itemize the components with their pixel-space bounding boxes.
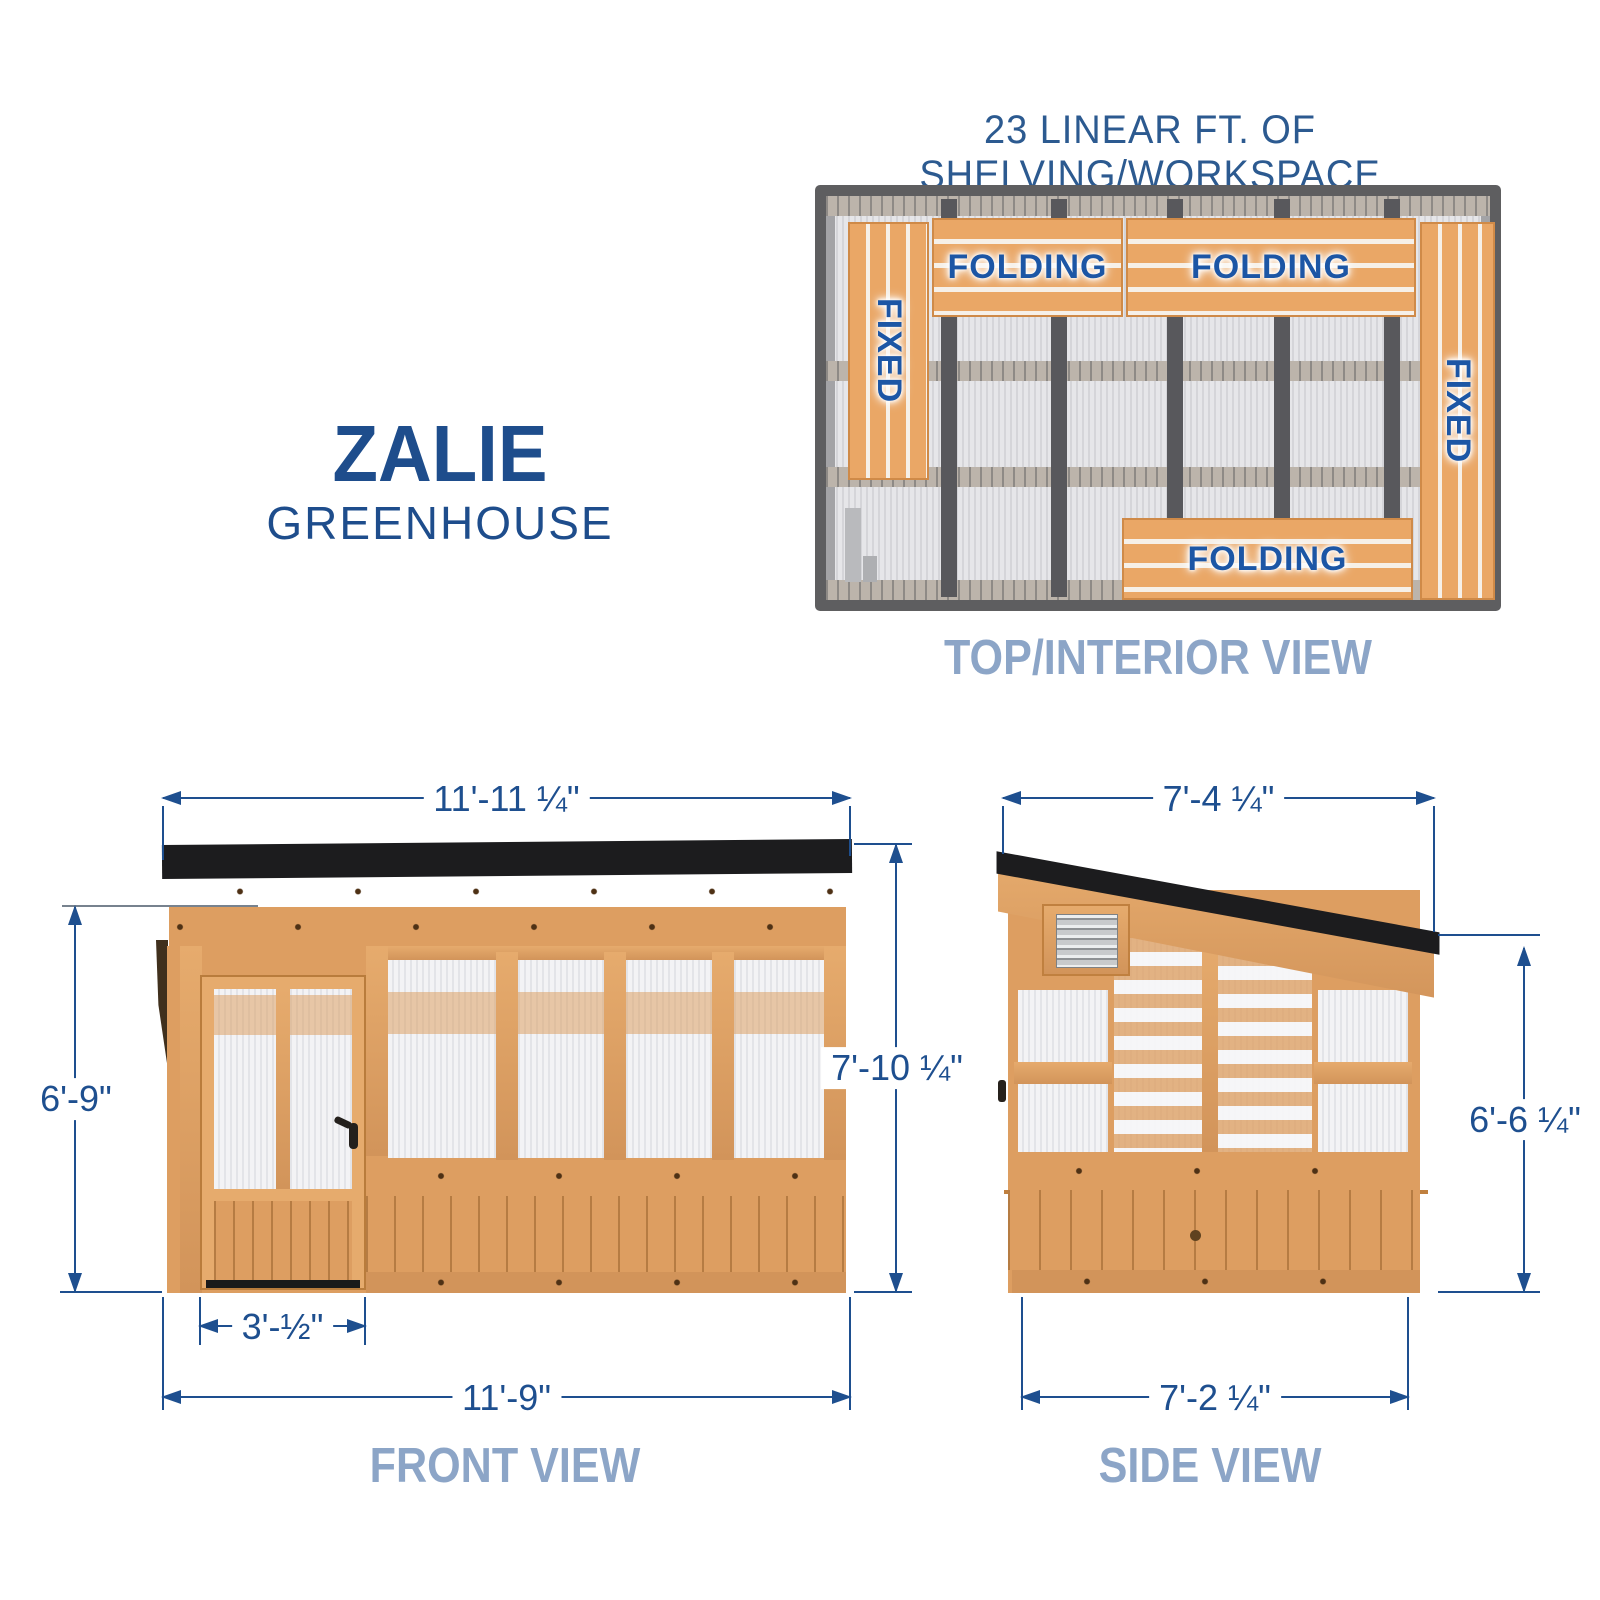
louver-vent: [1056, 914, 1118, 968]
base-trim: [1012, 1270, 1420, 1293]
extension-line: [162, 806, 164, 860]
shelf-folding-bottom: FOLDING: [1122, 518, 1413, 600]
extension-line: [849, 806, 851, 856]
shelf-folding-top-left: FOLDING: [932, 218, 1123, 317]
dim-label: 7'-10 ¼": [821, 1047, 973, 1089]
arrow-down-icon: [68, 1273, 82, 1293]
shelf-fixed-right: FIXED: [1420, 222, 1495, 600]
arrow-left-icon: [161, 1390, 181, 1404]
extension-line: [60, 1291, 162, 1293]
arrow-right-icon: [1390, 1390, 1410, 1404]
dim-side-base-depth: 7'-2 ¼": [1022, 1396, 1408, 1398]
window-mullion: [496, 952, 518, 1160]
caption-side-view: SIDE VIEW: [1025, 1438, 1395, 1494]
dim-label: 11'-9": [452, 1377, 561, 1419]
extension-line: [62, 905, 258, 907]
dim-front-door-height: 6'-9": [74, 907, 76, 1291]
extension-line: [854, 1291, 912, 1293]
door-hardware: [863, 556, 877, 582]
lower-paneling: [366, 1196, 846, 1272]
shelf-fixed-left: FIXED: [848, 222, 929, 480]
window-mullion: [604, 952, 626, 1160]
arrow-right-icon: [347, 1319, 367, 1333]
product-subtitle: GREENHOUSE: [230, 496, 650, 550]
fascia-board: [169, 907, 846, 947]
arrow-left-icon: [161, 791, 181, 805]
shelf-label: FOLDING: [1128, 220, 1414, 315]
dim-side-wall-height: 6'-6 ¼": [1523, 948, 1525, 1291]
dim-front-overall-width: 11'-11 ¼": [163, 797, 850, 799]
dim-label: 6'-6 ¼": [1459, 1099, 1591, 1141]
shelf-label: FIXED: [1422, 224, 1493, 598]
window-mullion: [712, 952, 734, 1160]
dim-label: 7'-2 ¼": [1149, 1377, 1281, 1419]
arrow-left-icon: [1020, 1390, 1040, 1404]
wood-knot: [1190, 1230, 1201, 1241]
front-view-drawing: [150, 840, 862, 1295]
arrow-left-icon: [1001, 791, 1021, 805]
extension-line: [854, 843, 912, 845]
extension-line: [1438, 1291, 1540, 1293]
door-handle-side: [998, 1080, 1006, 1102]
dim-front-overall-height: 7'-10 ¼": [895, 845, 897, 1291]
lower-paneling: [1008, 1190, 1420, 1270]
door: [200, 975, 366, 1290]
dim-label: 11'-11 ¼": [423, 778, 589, 820]
side-view-drawing: [990, 840, 1450, 1295]
extension-line: [1438, 934, 1540, 936]
top-interior-view-drawing: FIXED FOLDING FOLDING FIXED FOLDING: [815, 185, 1501, 611]
base-trim: [366, 1272, 846, 1293]
arrow-left-icon: [198, 1319, 218, 1333]
fascia-board: [165, 874, 850, 909]
dim-front-base-width: 11'-9": [163, 1396, 850, 1398]
arrow-right-icon: [832, 1390, 852, 1404]
door-threshold: [206, 1280, 360, 1288]
extension-line: [1433, 806, 1435, 932]
arrow-up-icon: [889, 843, 903, 863]
dim-side-overall-depth: 7'-4 ¼": [1003, 797, 1434, 799]
caption-front-view: FRONT VIEW: [197, 1438, 813, 1494]
arrow-right-icon: [1416, 791, 1436, 805]
arrow-down-icon: [889, 1273, 903, 1293]
diagram-page: 23 LINEAR FT. OF SHELVING/WORKSPACE ZALI…: [0, 0, 1600, 1600]
door-window-mullion: [276, 989, 290, 1189]
shelf-label: FOLDING: [1124, 520, 1411, 598]
arrow-right-icon: [832, 791, 852, 805]
dim-label: 3'-½": [232, 1306, 334, 1348]
caption-top-view: TOP/INTERIOR VIEW: [856, 630, 1460, 686]
door-top-view: [845, 508, 861, 582]
door-lower-panel: [214, 1201, 352, 1283]
door-post: [180, 946, 202, 1293]
dim-label: 6'-9": [30, 1078, 122, 1120]
mid-rail: [366, 1156, 846, 1200]
dim-label: 7'-4 ¼": [1153, 778, 1285, 820]
extension-line: [1002, 806, 1004, 854]
window-cross-bar: [1014, 1062, 1112, 1084]
product-title: ZALIE: [263, 408, 616, 500]
shelf-label: FOLDING: [934, 220, 1121, 315]
side-center-mullion: [1202, 938, 1218, 1152]
window-cross-bar: [1314, 1062, 1412, 1084]
shelf-label: FIXED: [850, 224, 927, 478]
louver-vent-frame: [1042, 904, 1130, 976]
arrow-up-icon: [68, 905, 82, 925]
shelf-folding-top-right: FOLDING: [1126, 218, 1416, 317]
mid-rail: [1004, 1152, 1428, 1194]
door-post: [366, 946, 388, 1156]
side-center-panel: [1218, 952, 1312, 1152]
dim-front-door-width: 3'-½": [200, 1325, 365, 1327]
arrow-down-icon: [1517, 1273, 1531, 1293]
front-roof: [162, 839, 852, 879]
arrow-up-icon: [1517, 946, 1531, 966]
